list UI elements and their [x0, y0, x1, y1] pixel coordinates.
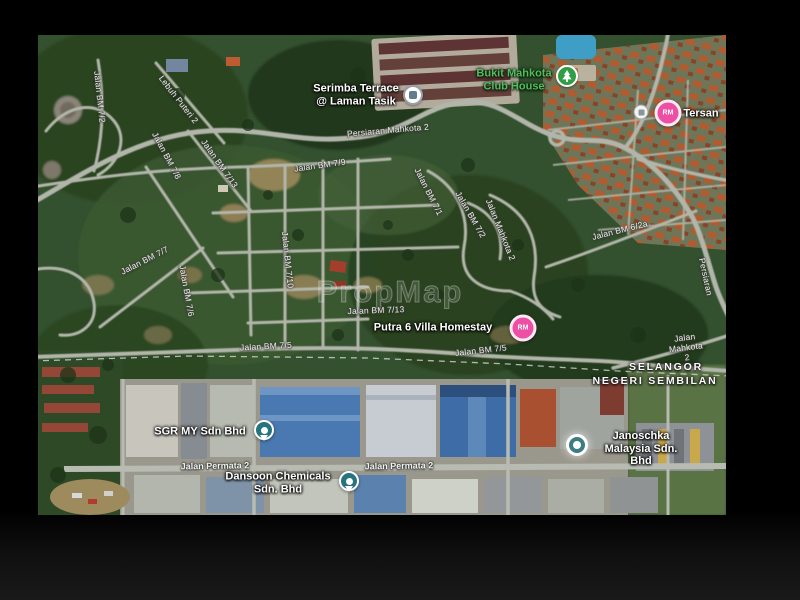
label-selangor: SELANGOR	[629, 361, 703, 373]
label-sgr-my-sdn-bhd[interactable]: SGR MY Sdn Bhd	[154, 426, 245, 439]
label-jalan-bm-7-9: Jalan BM 7/9	[294, 158, 347, 175]
label-jalan-bm-7-1: Jalan BM 7/1	[412, 167, 444, 218]
price-marker-putra[interactable]: RM	[510, 315, 537, 342]
label-bukit-mahkota-club-house[interactable]: Bukit Mahkota Club House	[476, 67, 551, 92]
label-jalan-bm-7-13-diagonal: Jalan BM 7/13	[199, 138, 240, 190]
label-putra-6-villa-homestay[interactable]: Putra 6 Villa Homestay	[374, 322, 492, 335]
label-jalan-bm-7-13-horizontal: Jalan BM 7/13	[347, 305, 404, 317]
label-persiaran-mahkota-2: Persiaran Mahkota 2	[347, 123, 430, 140]
label-jalan-mahkota-2-bottom: Jalan Mahkota 2	[664, 331, 707, 365]
label-jalan-bm-7-5-left: Jalan BM 7/5	[240, 341, 292, 353]
satellite-map[interactable]: PropMap Persiaran Mahkota 2Jalan BM 7/9J…	[38, 35, 726, 515]
watermark: PropMap	[317, 274, 464, 310]
label-dansoon-chemicals[interactable]: Dansoon Chemicals Sdn. Bhd	[225, 470, 330, 495]
label-jalan-bm-7-6: Jalan BM 7/6	[177, 265, 196, 318]
label-negeri-sembilan: NEGERI SEMBILAN	[592, 375, 717, 387]
dansoon-marker[interactable]	[339, 471, 359, 491]
janoschka-marker[interactable]	[566, 434, 588, 456]
label-janoschka-malaysia[interactable]: Janoschka Malaysia Sdn. Bhd	[599, 430, 684, 468]
label-jalan-bm-7-2-right: Jalan BM 7/2	[453, 190, 487, 240]
label-lebuh-puteri-2: Lebuh Puteri 2	[156, 74, 199, 126]
label-jalan-mahkota-2-mid: Jalan Mahkota 2	[483, 198, 517, 262]
label-jalan-bm-6-2a: Jalan BM 6/2a	[591, 219, 649, 242]
label-jalan-bm-7-2-left: Jalan BM 7/2	[91, 71, 106, 124]
label-persiaran-right-edge: Persiaran	[696, 257, 713, 296]
info-marker-top-right[interactable]	[634, 105, 649, 120]
label-tersan-truncated[interactable]: Tersan	[683, 108, 718, 121]
sgr-my-marker[interactable]	[254, 420, 274, 440]
label-serimba-terrace[interactable]: Serimba Terrace @ Laman Tasik	[313, 82, 398, 107]
label-jalan-permata-2-left: Jalan Permata 2	[181, 460, 250, 472]
label-jalan-bm-7-8: Jalan BM 7/8	[149, 131, 182, 182]
club-house-marker[interactable]	[556, 65, 578, 87]
serimba-terrace-marker[interactable]	[403, 85, 423, 105]
price-marker-top-right[interactable]: RM	[655, 100, 682, 127]
label-jalan-bm-7-10: Jalan BM 7/10	[279, 231, 295, 289]
label-jalan-bm-7-7: Jalan BM 7/7	[120, 245, 171, 277]
label-jalan-permata-2-right: Jalan Permata 2	[365, 460, 434, 472]
letterbox-background: PropMap Persiaran Mahkota 2Jalan BM 7/9J…	[0, 0, 800, 600]
label-jalan-bm-7-5-right: Jalan BM 7/5	[455, 343, 508, 358]
map-annotations-layer: PropMap Persiaran Mahkota 2Jalan BM 7/9J…	[38, 35, 726, 515]
